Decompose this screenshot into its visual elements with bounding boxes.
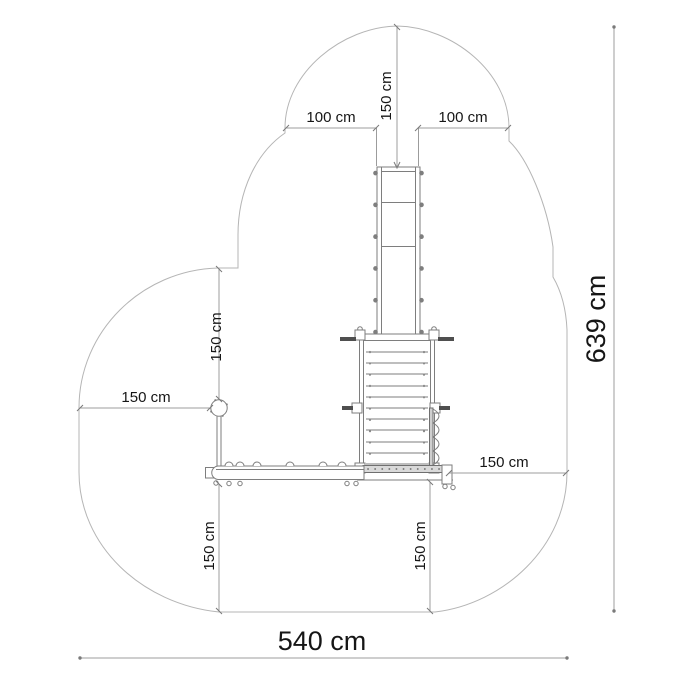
dim-label-total-height: 639 cm — [581, 275, 611, 364]
platform-tower — [340, 327, 455, 490]
dim-label-bottom-left-clearance: 150 cm — [201, 521, 218, 570]
slide-end-cap — [377, 167, 420, 172]
dim-label-top-clearance: 150 cm — [378, 71, 395, 120]
balance-beam — [206, 462, 365, 486]
dim-label-slide-right-offset: 100 cm — [438, 109, 487, 126]
slide-left-rail — [377, 167, 382, 334]
post-top-left — [355, 330, 365, 340]
slide-right-rail — [416, 167, 421, 334]
plan-drawing: 150 cm 100 cm 100 cm 150 cm 150 cm 150 c… — [0, 0, 680, 680]
dim-label-upper-left-clearance: 150 cm — [208, 312, 225, 361]
dim-slide-left-offset: 100 cm — [283, 109, 379, 166]
beam-body — [212, 466, 364, 480]
support-post — [211, 400, 228, 466]
dim-right-clearance: 150 cm — [446, 454, 569, 476]
slide — [376, 167, 422, 334]
beam-top-knobs — [225, 462, 346, 466]
dim-top-clearance: 150 cm — [378, 24, 400, 168]
post-mid-left — [352, 403, 362, 413]
post-connector — [217, 414, 221, 466]
platform-frame — [360, 334, 435, 472]
dim-label-total-width: 540 cm — [278, 626, 367, 656]
climber-rail — [430, 408, 434, 468]
dim-upper-left-clearance: 150 cm — [208, 266, 225, 402]
dim-total-width: 540 cm — [78, 626, 568, 660]
dim-bottom-right-clearance: 150 cm — [412, 479, 433, 614]
post-top-right — [429, 330, 439, 340]
post-cap — [211, 400, 227, 416]
dim-label-left-clearance: 150 cm — [121, 389, 170, 406]
dim-label-bottom-right-clearance: 150 cm — [412, 521, 429, 570]
slide-cross-bars — [382, 203, 416, 247]
dim-label-slide-left-offset: 100 cm — [306, 109, 355, 126]
dim-label-right-clearance: 150 cm — [479, 454, 528, 471]
dim-slide-right-offset: 100 cm — [415, 109, 511, 166]
dim-bottom-left-clearance: 150 cm — [201, 481, 222, 614]
dim-total-height: 639 cm — [581, 25, 616, 612]
dim-left-clearance: 150 cm — [77, 389, 213, 411]
plan-drawing-canvas: 150 cm 100 cm 100 cm 150 cm 150 cm 150 c… — [0, 0, 680, 680]
